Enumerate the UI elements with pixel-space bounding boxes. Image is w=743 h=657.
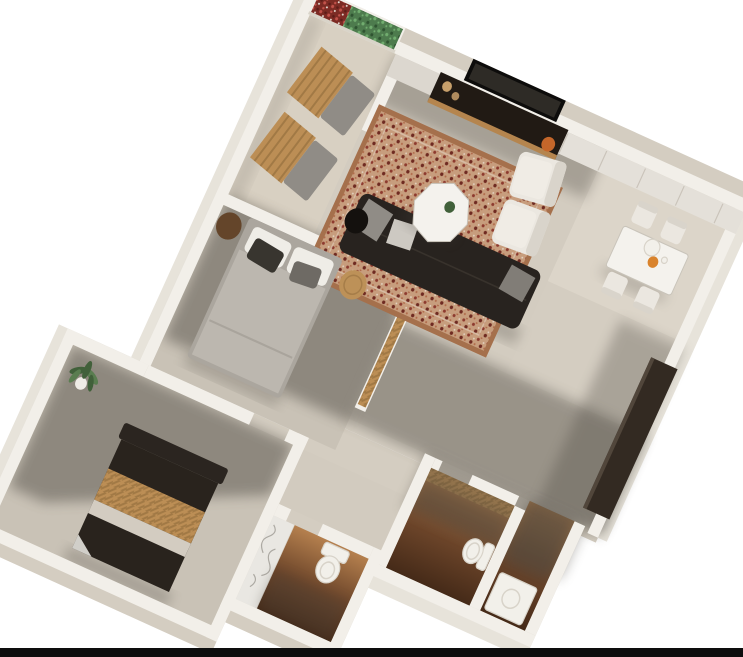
bottom-letterbox-bar bbox=[0, 648, 743, 657]
floor-plan-render bbox=[0, 0, 743, 657]
floor-plan-svg bbox=[0, 0, 743, 657]
